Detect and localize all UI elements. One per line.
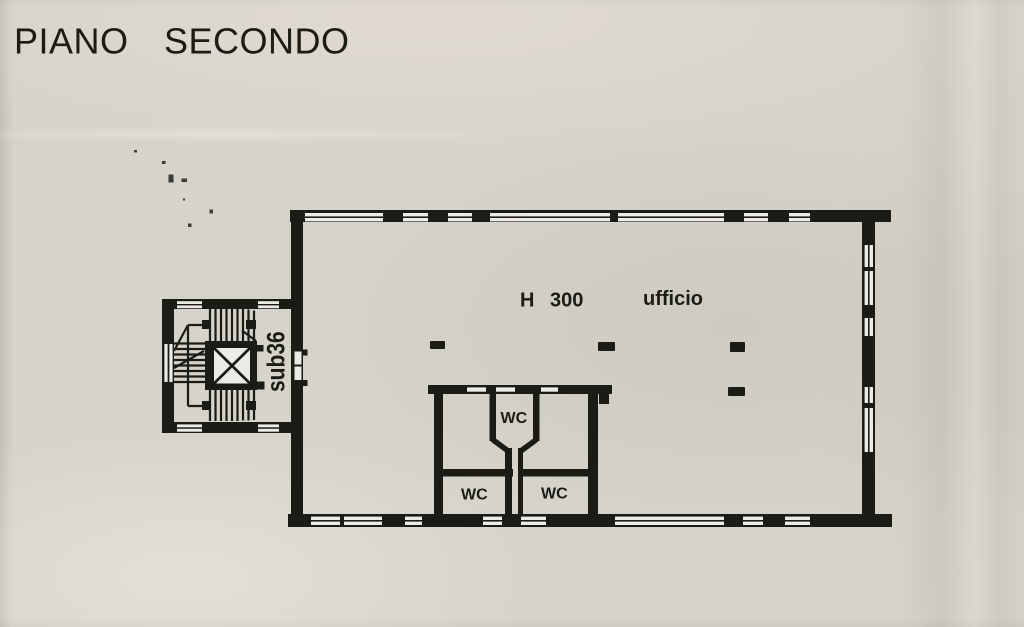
svg-text:H: H [520, 290, 534, 312]
svg-text:SECONDO: SECONDO [164, 21, 350, 62]
svg-text:PIANO: PIANO [14, 21, 129, 62]
svg-text:ufficio: ufficio [643, 288, 703, 310]
svg-text:WC: WC [501, 410, 528, 427]
svg-text:WC: WC [541, 486, 568, 503]
svg-text:WC: WC [461, 487, 488, 504]
svg-text:300: 300 [550, 290, 583, 312]
svg-text:sub36: sub36 [262, 331, 290, 392]
